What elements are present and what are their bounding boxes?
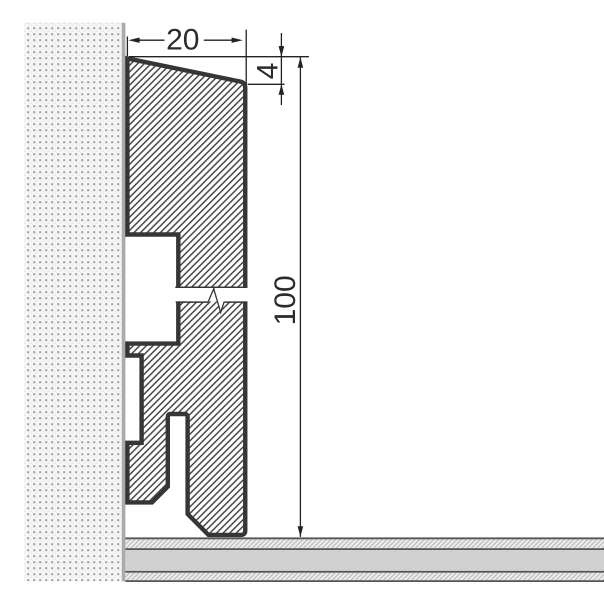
svg-text:100: 100 (269, 275, 302, 325)
svg-text:20: 20 (166, 24, 199, 57)
svg-text:4: 4 (252, 63, 285, 80)
